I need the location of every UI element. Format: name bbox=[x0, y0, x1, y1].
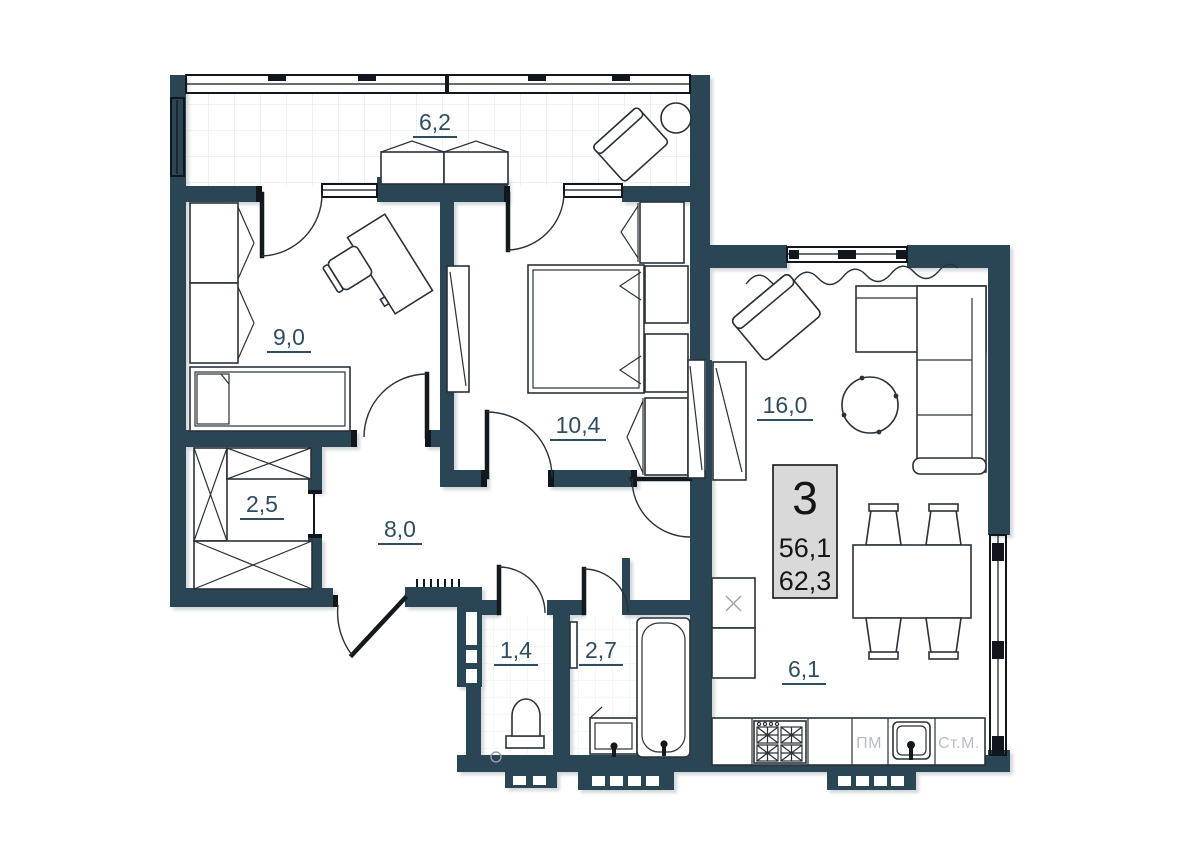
room-label-wc: 1,4 bbox=[500, 637, 532, 663]
kitchen-cabinet-lower bbox=[712, 628, 755, 678]
balcony-table bbox=[661, 103, 691, 133]
balcony-glazing bbox=[186, 75, 690, 93]
bed-double bbox=[528, 265, 644, 393]
door-bedroom2-hall bbox=[487, 412, 552, 477]
bed-single bbox=[190, 367, 350, 431]
wall-bedroom1-bottom bbox=[170, 430, 357, 447]
unit-rooms-count: 3 bbox=[792, 472, 818, 524]
room-label-hallway: 8,0 bbox=[384, 516, 416, 542]
wall-wc-top-b bbox=[547, 600, 582, 615]
wardrobe-sliding-left bbox=[447, 266, 469, 392]
wall-bedroom2-bottom-b bbox=[548, 470, 637, 487]
dining-table bbox=[853, 545, 971, 618]
door-bathroom bbox=[584, 569, 628, 613]
coffee-table-round bbox=[842, 376, 899, 435]
door-entrance bbox=[338, 598, 405, 655]
wall-kitchen-left bbox=[690, 470, 712, 772]
nightstand-top bbox=[645, 266, 688, 323]
dining-chair bbox=[926, 510, 961, 545]
wall-balcony-pier-b bbox=[622, 186, 690, 202]
dining-chair bbox=[926, 618, 961, 653]
floor-plan-canvas: ПМ Ст.М. 6,2 9,0 10,4 16,0 2,5 8,0 1,4 2… bbox=[0, 0, 1200, 848]
dining-set bbox=[853, 504, 971, 659]
vent-block-wc bbox=[505, 772, 557, 788]
door-wc bbox=[499, 567, 545, 613]
bathtub bbox=[637, 618, 690, 757]
wall-wardrobe-thin bbox=[706, 360, 712, 480]
unit-info-box: 3 56,1 62,3 bbox=[773, 465, 837, 598]
wall-wc-bath-divider bbox=[553, 615, 570, 755]
window-living-top bbox=[787, 247, 907, 262]
wall-entry-threshold bbox=[405, 587, 458, 607]
living-armchair bbox=[731, 273, 822, 362]
kitchen-sink bbox=[893, 722, 930, 760]
unit-living-area: 56,1 bbox=[779, 533, 832, 563]
window-living-right bbox=[990, 535, 1006, 755]
washing-machine-label: Ст.М. bbox=[938, 735, 980, 752]
floor-plan-drawing: ПМ Ст.М. 6,2 9,0 10,4 16,0 2,5 8,0 1,4 2… bbox=[0, 0, 1200, 848]
wall-storage-bottom bbox=[170, 588, 333, 607]
stove bbox=[754, 721, 806, 763]
wall-balcony-pier-a bbox=[186, 186, 258, 202]
wall-wc-left bbox=[466, 687, 481, 755]
dining-chair bbox=[866, 618, 901, 653]
nightstand-bottom bbox=[645, 334, 688, 392]
door-balcony-bedroom2 bbox=[508, 194, 564, 250]
wall-bath-top bbox=[628, 600, 692, 615]
room-label-living: 16,0 bbox=[763, 392, 808, 418]
door-bedroom1-hall bbox=[364, 374, 427, 437]
wall-bedroom2-living bbox=[690, 202, 710, 360]
unit-total-area: 62,3 bbox=[779, 566, 832, 596]
room-label-bathroom: 2,7 bbox=[585, 637, 617, 663]
towel-rail bbox=[570, 622, 577, 668]
room-label-storage: 2,5 bbox=[246, 491, 278, 517]
wall-living-right bbox=[988, 245, 1010, 535]
wall-living-top-a bbox=[710, 245, 787, 268]
dining-chair bbox=[866, 510, 901, 545]
bedroom1-furniture bbox=[190, 203, 433, 431]
wall-balcony-right bbox=[690, 75, 710, 202]
room-label-balcony: 6,2 bbox=[419, 109, 451, 135]
wardrobe-sliding-right bbox=[688, 360, 705, 478]
room-label-kitchen: 6,1 bbox=[788, 656, 820, 682]
door-balcony-bedroom1 bbox=[262, 194, 322, 256]
dresser-bottom bbox=[627, 398, 688, 475]
dresser-top bbox=[621, 202, 684, 263]
room-label-bedroom2: 10,4 bbox=[556, 412, 601, 438]
dishwasher-label: ПМ bbox=[856, 735, 882, 752]
entrance-threshold-ticks bbox=[417, 579, 459, 587]
room-label-bedroom1: 9,0 bbox=[273, 324, 305, 350]
wardrobe-living bbox=[713, 362, 746, 480]
wardrobe-bedroom1 bbox=[190, 203, 254, 363]
door-living-hall bbox=[632, 479, 690, 537]
wall-wc-top-a bbox=[480, 600, 497, 615]
